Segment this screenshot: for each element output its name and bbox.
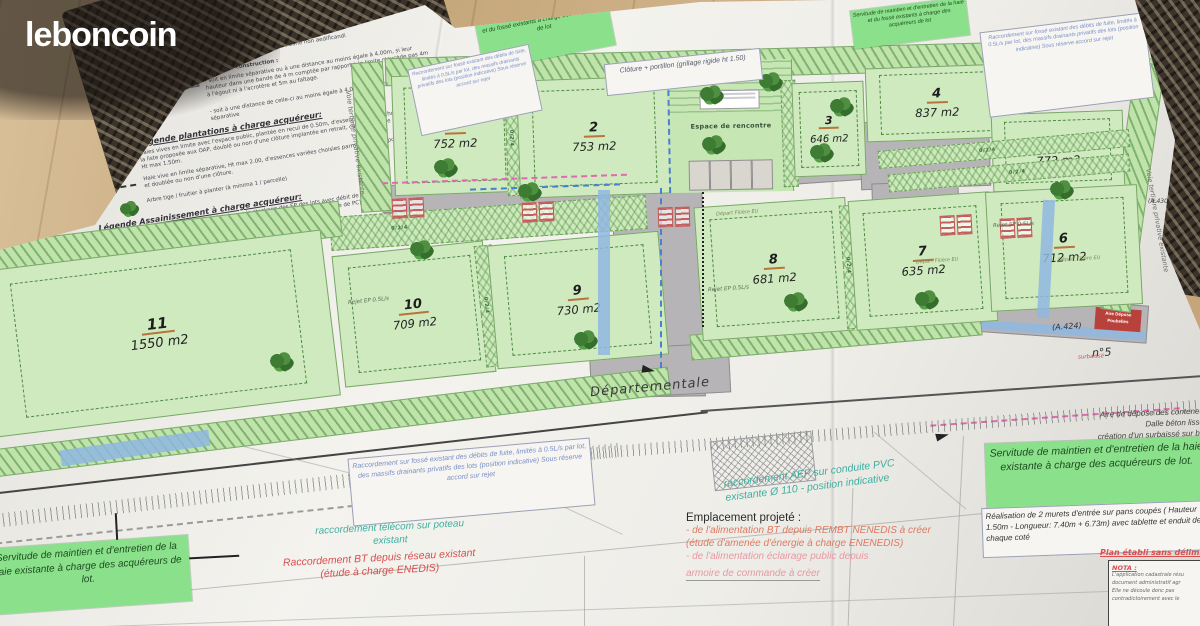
lot-number: 9 [566, 283, 588, 301]
nota-title: NOTA : [1112, 564, 1200, 572]
drain-symbol-pair [391, 197, 424, 219]
lot-parcel-8: 8681 m2 [694, 197, 855, 341]
lot-area: 752 m2 [433, 136, 478, 152]
lot-number: 4 [926, 87, 948, 104]
lot-area: 753 m2 [572, 139, 617, 155]
swale-water-strip [598, 190, 610, 355]
lot-number: 11 [140, 313, 175, 335]
lot-area: 1550 m2 [130, 332, 190, 354]
lot-number: 2 [583, 121, 605, 138]
tree-icon [117, 200, 140, 219]
spacing-mark: 0/2/4 [508, 130, 515, 147]
lot-area: 709 m2 [392, 314, 437, 333]
lot-area: 837 m2 [915, 105, 960, 121]
servitude-note-top-right: Servitude de maintien et d'entretien de … [850, 0, 970, 49]
lot-number: 8 [762, 253, 784, 271]
drain-symbol-pair [658, 206, 691, 227]
nota-box: NOTA : L'application cadastrale résu doc… [1108, 560, 1200, 626]
lot-parcel-6: 6712 m2 [985, 184, 1143, 312]
emplacement-title: Emplacement projeté : [686, 512, 986, 524]
survey-line [584, 556, 585, 626]
raccordement-fosse-note: Raccordement sur fossé existant des débi… [347, 438, 595, 527]
emplacement-line: - de l'alimentation éclairage public dep… [686, 550, 986, 563]
servitude-dotted-line [702, 192, 704, 327]
emplacement-line: (étude d'amenée d'énergie à charge ENENE… [686, 537, 986, 550]
nota-line: contradictoirement avec le [1112, 596, 1200, 604]
servitude-note-bottom-right: Servitude de maintien et d'entretien de … [985, 436, 1200, 510]
lot-number: 10 [397, 297, 429, 316]
spacing-mark: 0/2/4 [482, 297, 490, 314]
survey-flag-icon [935, 430, 950, 441]
lot-parcel-10: 10709 m2 [332, 240, 497, 387]
spacing-mark: 0/2/4 [391, 225, 408, 232]
emplacement-projete-block: Emplacement projeté : - de l'alimentatio… [686, 512, 986, 581]
emplacement-line: - de l'alimentation BT depuis REMBT NENE… [686, 524, 986, 537]
raccordement-bt-note: Raccordement BT depuis réseau existant (… [281, 547, 477, 583]
parking-cells [689, 159, 774, 190]
plan-etabli-note: Plan établi sans délimitation [1100, 548, 1200, 557]
leboncoin-logo: leboncoin [25, 16, 177, 55]
nota-line: Elle ne découle donc pas [1112, 587, 1200, 596]
drain-symbol-pair [939, 214, 972, 236]
espace-label: Espace de rencontre [691, 121, 772, 130]
nota-line: L'application cadastrale résu [1112, 572, 1200, 580]
road-number-label: n°5 [1092, 345, 1112, 359]
lot-parcel-3: 3646 m2 [791, 81, 866, 177]
telecom-note: raccordement télécom sur poteau existant [299, 517, 480, 551]
drain-symbol-pair [521, 201, 554, 223]
spacing-mark: 0/2/4 [1009, 169, 1026, 176]
raccordement-fosse-note-top-right: Raccordement sur fossé existant des débi… [979, 12, 1154, 118]
nota-line: document administratif agr [1112, 580, 1200, 588]
spacing-mark: 0/2/4 [979, 147, 996, 154]
servitude-note-bottom-left: Servitude de maintien et d'entretien de … [0, 535, 192, 615]
lot-area: 730 m2 [556, 301, 601, 319]
listing-photo[interactable]: Z1: Zone de Construction à vocation à re… [0, 0, 1200, 626]
spacing-mark: 0/2/4 [845, 257, 852, 274]
lot-number: 6 [1053, 232, 1075, 249]
emplacement-line: armoire de commande à créer [686, 567, 820, 581]
lot-number: 3 [819, 115, 839, 130]
logo-dark-overlay: leboncoin [0, 0, 280, 120]
lot-area: 681 m2 [752, 270, 797, 287]
